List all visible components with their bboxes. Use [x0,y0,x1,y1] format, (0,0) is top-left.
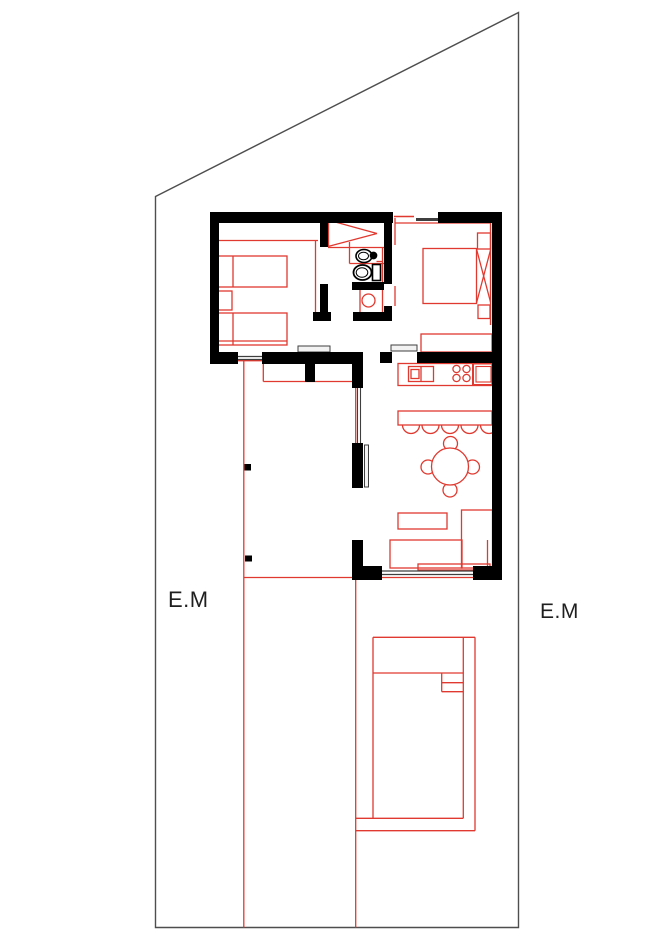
bar-stool-3 [442,425,459,434]
floor-plan-svg [0,0,671,950]
wall-living-west-1 [352,352,363,388]
sink-bowl-inner [359,252,369,260]
wall-kitchen-north-a [380,352,392,363]
wall-living-west-2 [352,443,363,488]
tv-stand [398,513,447,529]
kitchen-sink-inner [476,367,491,383]
toilet-bowl-inner [356,268,368,278]
bedroom2-door-leaf [391,345,417,351]
em-label-left: E.M [168,587,209,613]
sink-tap [370,252,376,258]
nightstand-1 [218,291,232,310]
kitchen-appliance-inner [411,370,419,379]
bed-1 [217,256,287,287]
wall-south-bedroom1-a [210,352,238,364]
burner-1 [453,365,460,372]
burner-3 [453,374,460,381]
double-bed [423,249,477,304]
living-door-leaf [365,445,369,487]
nightstand-3 [478,305,490,319]
shower-drain [362,294,375,307]
bedroom1-door-leaf [298,346,330,352]
drawing-sheet: E.M E.M [0,0,671,950]
wall-bath-west-upper [320,212,328,247]
dining-table [432,448,469,485]
toilet-tank [373,265,381,281]
wall-west [210,212,219,363]
wall-alcove-stub [305,352,315,382]
wall-bath-south-right [353,312,392,321]
wall-kitchen-north-b [417,352,502,363]
bar-counter [398,411,492,425]
wall-bath-east-upper [384,212,392,284]
wall-top-left [210,212,393,223]
terrace-column-2 [245,556,252,562]
wall-bottom-left [352,566,382,580]
wall-bath-south-left [313,312,331,321]
bar-stool-2 [422,425,439,434]
closet-rod-line-b [328,234,377,247]
bedroom2-cabinet [421,334,492,352]
bed-2 [217,313,287,345]
bar-stool-1 [403,425,420,434]
em-label-right: E.M [540,600,579,624]
burner-4 [463,374,470,381]
burner-2 [463,365,470,372]
wall-bottom-right [473,566,502,580]
wall-shower-north [352,282,384,290]
wall-east [492,212,502,580]
terrace-column-1 [245,464,252,471]
bar-stool-4 [461,425,478,434]
nightstand-2 [478,233,491,249]
